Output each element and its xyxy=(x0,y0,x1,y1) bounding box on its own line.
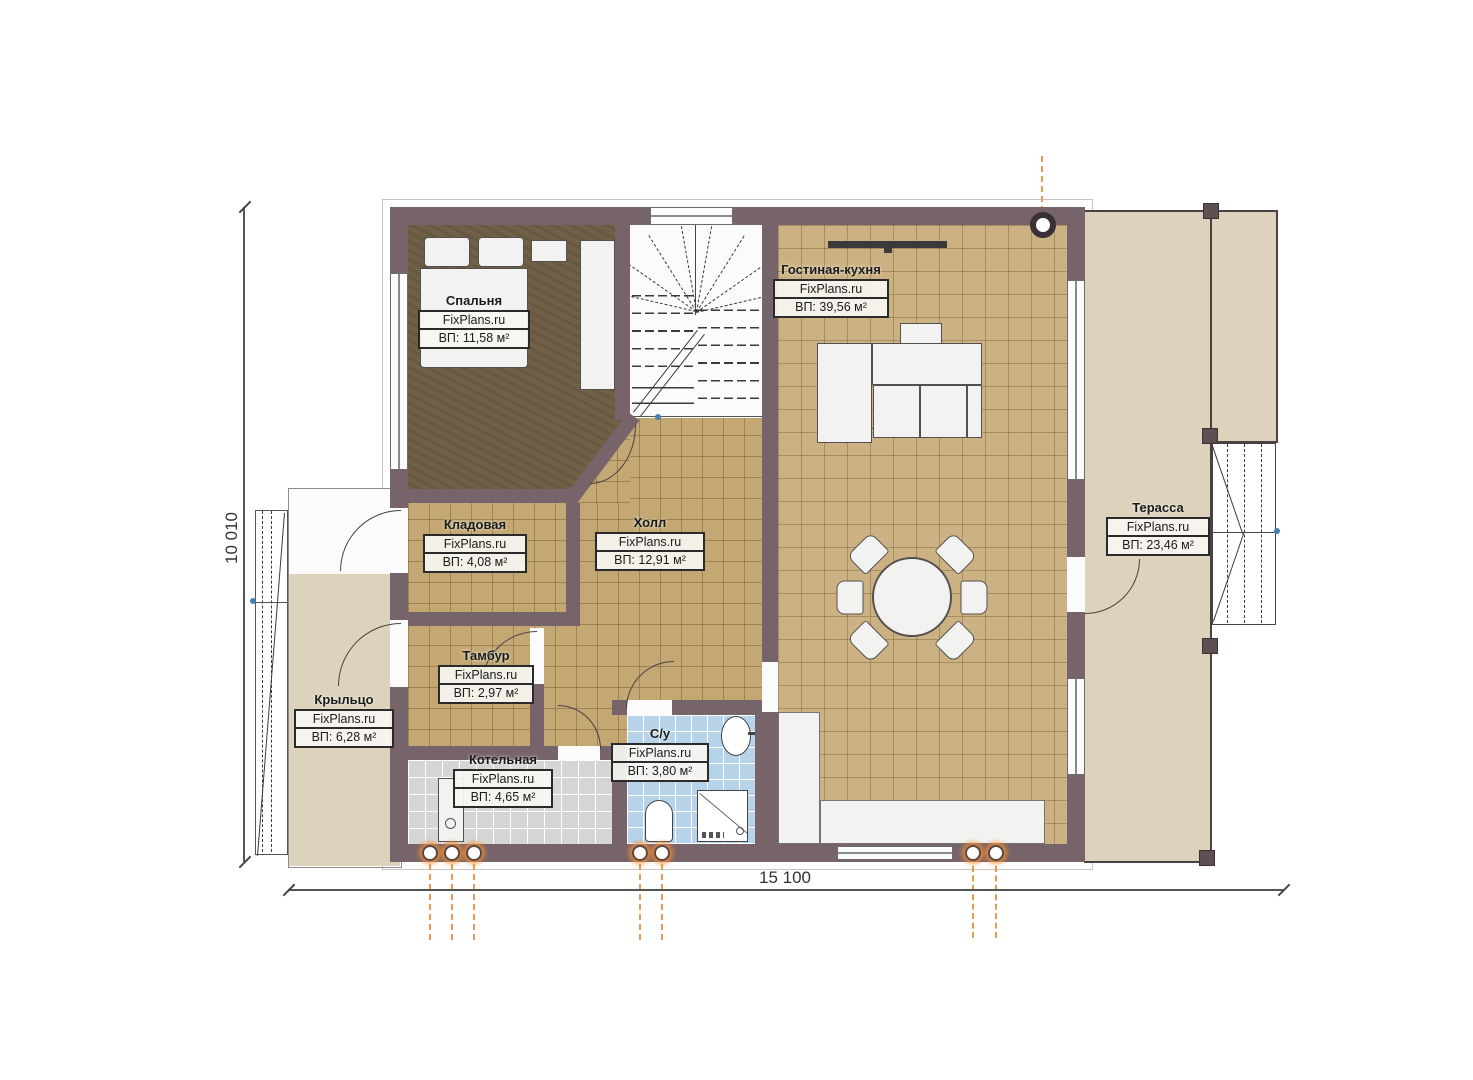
pipe-riser xyxy=(473,864,475,940)
bed-pillow xyxy=(478,237,524,267)
dimension-bottom: 15 100 xyxy=(735,868,835,888)
boiler-dial xyxy=(445,818,456,829)
room-label-vestibule: Тамбур FixPlans.ruВП: 2,97 м² xyxy=(440,648,532,704)
room-name: Котельная xyxy=(469,752,537,767)
window-bedroom-left xyxy=(390,273,408,470)
room-area: ВП: 6,28 м² xyxy=(296,729,392,745)
dining-set xyxy=(872,557,952,637)
wall-storage-bottom xyxy=(408,612,580,626)
wall-bathroom-top-a xyxy=(612,700,627,715)
brand-watermark: FixPlans.ru xyxy=(455,771,551,789)
room-name: Тамбур xyxy=(462,648,509,663)
window-living-right-2 xyxy=(1067,678,1085,775)
terrace-post xyxy=(1199,850,1215,866)
bedside-shelf xyxy=(531,240,567,262)
kitchen-counter-bottom xyxy=(820,800,1045,844)
room-name: С/у xyxy=(650,726,670,741)
brand-watermark: FixPlans.ru xyxy=(296,711,392,729)
brand-watermark: FixPlans.ru xyxy=(1108,519,1208,537)
room-area: ВП: 11,58 м² xyxy=(420,330,528,346)
brand-watermark: FixPlans.ru xyxy=(425,536,525,554)
terrace-post xyxy=(1203,203,1219,219)
sofa xyxy=(817,343,982,443)
staircase xyxy=(630,225,762,418)
kitchen-counter-left xyxy=(778,712,820,844)
tv-stand xyxy=(884,248,892,253)
room-name: Холл xyxy=(634,515,667,530)
room-area: ВП: 12,91 м² xyxy=(597,552,703,568)
terrace-post xyxy=(1202,638,1218,654)
room-area: ВП: 4,08 м² xyxy=(425,554,525,570)
shower xyxy=(697,790,748,842)
chimney-icon xyxy=(1030,212,1056,238)
room-label-living: Гостиная-кухня FixPlans.ruВП: 39,56 м² xyxy=(775,262,887,318)
chimney-riser xyxy=(1041,156,1043,212)
wall-living-left-lower xyxy=(755,712,778,844)
pipe-riser xyxy=(451,864,453,940)
wall-storage-right xyxy=(566,503,580,612)
pipe-riser xyxy=(995,866,997,938)
room-name: Кладовая xyxy=(444,517,506,532)
door-opening-terrace xyxy=(1067,557,1085,612)
room-area: ВП: 23,46 м² xyxy=(1108,537,1208,553)
room-area: ВП: 39,56 м² xyxy=(775,299,887,315)
room-label-porch: Крыльцо FixPlans.ruВП: 6,28 м² xyxy=(296,692,392,748)
pipe-riser xyxy=(661,864,663,940)
tv xyxy=(828,241,947,248)
dining-chair xyxy=(837,581,864,615)
floor-plan: x Спальня FixPlans.ruВП: 11,58 м² Кладов… xyxy=(0,0,1473,1080)
room-label-terrace: Терасса FixPlans.ruВП: 23,46 м² xyxy=(1108,500,1208,556)
terrace-post xyxy=(1202,428,1218,444)
brand-watermark: FixPlans.ru xyxy=(613,745,707,763)
ramp xyxy=(255,510,288,855)
bathroom-sink xyxy=(721,716,751,756)
pipe-marker xyxy=(466,845,482,861)
pipe-marker xyxy=(422,845,438,861)
room-name: Гостиная-кухня xyxy=(781,262,881,277)
pipe-riser xyxy=(429,864,431,940)
room-label-storage: Кладовая FixPlans.ruВП: 4,08 м² xyxy=(425,517,525,573)
dimension-line-bottom xyxy=(288,889,1283,891)
pipe-riser xyxy=(972,866,974,938)
room-label-boiler: Котельная FixPlans.ruВП: 4,65 м² xyxy=(455,752,551,808)
room-area: ВП: 4,65 м² xyxy=(455,789,551,805)
wall-bedroom-bottom xyxy=(408,489,575,503)
pipe-marker xyxy=(444,845,460,861)
bed-pillow xyxy=(424,237,470,267)
pipe-marker xyxy=(988,845,1004,861)
terrace-stairs xyxy=(1212,443,1276,625)
dining-chair xyxy=(961,581,988,615)
pipe-marker xyxy=(965,845,981,861)
brand-watermark: FixPlans.ru xyxy=(775,281,887,299)
room-label-bathroom: С/у FixPlans.ruВП: 3,80 м² xyxy=(613,726,707,782)
window-stairs-top xyxy=(650,207,733,225)
wardrobe xyxy=(580,240,615,390)
pipe-marker xyxy=(632,845,648,861)
window-kitchen-bottom xyxy=(837,846,953,860)
room-name: Терасса xyxy=(1132,500,1184,515)
room-label-bedroom: Спальня FixPlans.ruВП: 11,58 м² xyxy=(420,293,528,349)
terrace-floor-upper xyxy=(1212,210,1278,443)
pipe-marker xyxy=(654,845,670,861)
room-area: ВП: 2,97 м² xyxy=(440,685,532,701)
living-floor xyxy=(778,225,1067,844)
dimension-left: 10 010 xyxy=(222,498,242,578)
room-name: Крыльцо xyxy=(314,692,373,707)
toilet xyxy=(645,800,673,842)
dining-table xyxy=(872,557,952,637)
wall-top xyxy=(390,207,1085,225)
passage-hall-living xyxy=(762,662,778,712)
room-area: ВП: 3,80 м² xyxy=(613,763,707,779)
brand-watermark: FixPlans.ru xyxy=(420,312,528,330)
brand-watermark: FixPlans.ru xyxy=(597,534,703,552)
room-name: Спальня xyxy=(446,293,502,308)
pipe-riser xyxy=(639,864,641,940)
wall-bedroom-stairs xyxy=(615,225,630,420)
room-label-hall: Холл FixPlans.ruВП: 12,91 м² xyxy=(597,515,703,571)
brand-watermark: FixPlans.ru xyxy=(440,667,532,685)
dimension-line-left xyxy=(243,207,245,862)
window-living-right-1 xyxy=(1067,280,1085,480)
